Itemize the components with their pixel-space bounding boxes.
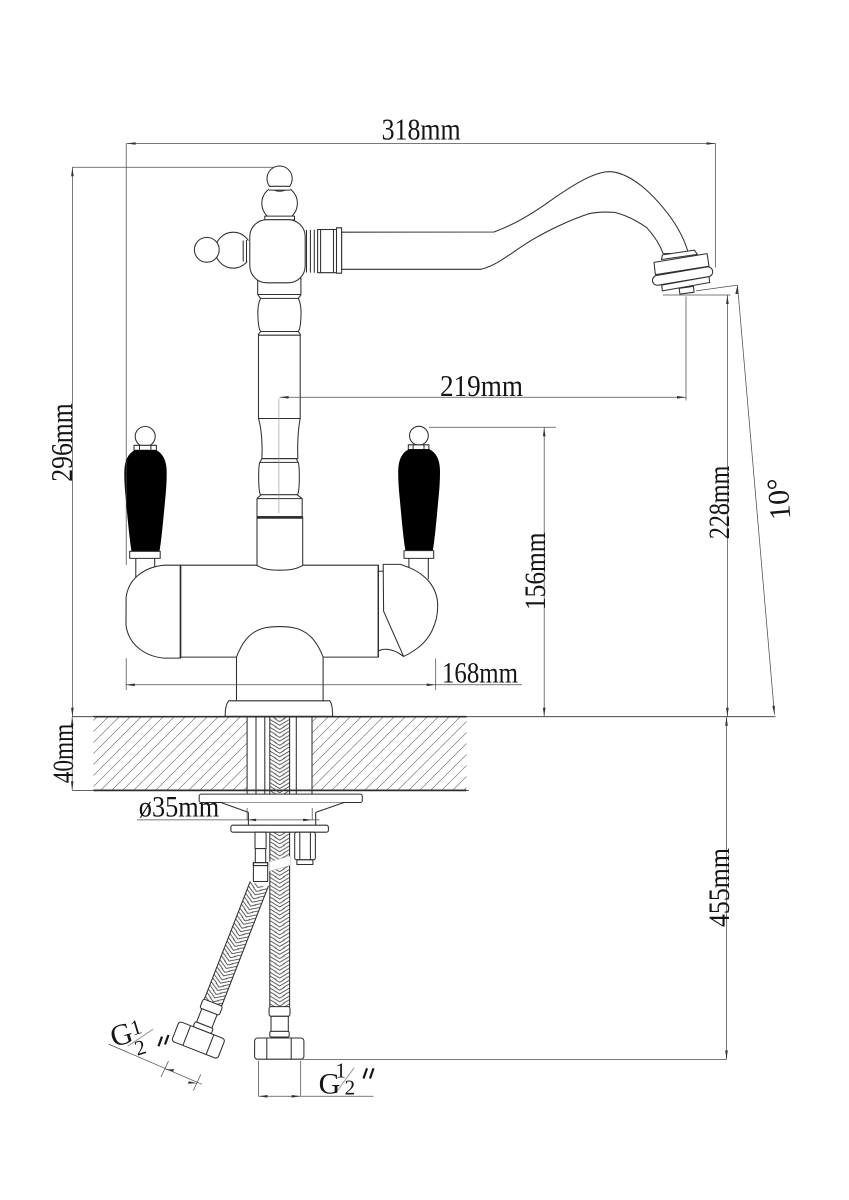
- svg-text:219mm: 219mm: [440, 368, 523, 403]
- svg-text:455mm: 455mm: [703, 848, 736, 927]
- svg-text:40mm: 40mm: [47, 724, 80, 784]
- svg-text:228mm: 228mm: [703, 466, 736, 539]
- svg-text:296mm: 296mm: [44, 403, 79, 481]
- svg-text:156mm: 156mm: [519, 533, 552, 611]
- svg-text:10°: 10°: [761, 477, 798, 522]
- svg-text:168mm: 168mm: [442, 657, 518, 690]
- svg-text:ø35mm: ø35mm: [139, 791, 219, 824]
- svg-text:318mm: 318mm: [382, 112, 461, 147]
